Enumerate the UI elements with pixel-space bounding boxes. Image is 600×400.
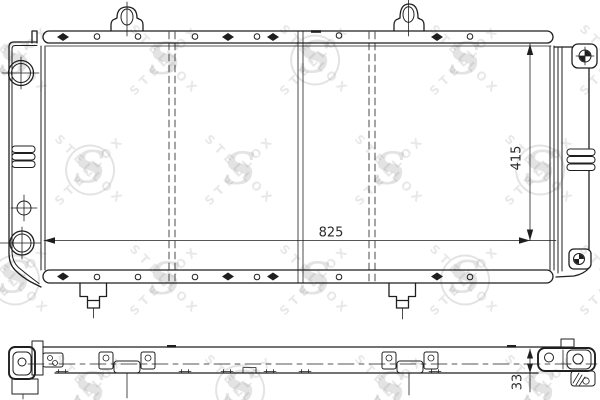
rivet-hole — [254, 34, 260, 40]
mount-tab — [141, 352, 155, 369]
top-rail-rivet-diamonds — [57, 33, 443, 41]
tab-hole — [428, 355, 434, 361]
tab-hole — [103, 355, 109, 361]
edge-notch — [243, 368, 256, 374]
strip-bracket-left — [9, 341, 63, 399]
rivet-hole — [135, 34, 141, 40]
arrowhead-down — [527, 230, 533, 241]
plug-body — [389, 283, 416, 308]
mount-tab — [382, 352, 396, 369]
strip-weld-mark — [167, 345, 176, 348]
arrowhead-right — [519, 237, 530, 243]
top-rail-weld-mark — [311, 30, 321, 33]
foot-outline — [571, 371, 595, 386]
drain-plug-right — [389, 283, 416, 319]
filler-neck — [2, 57, 39, 89]
foot-hole — [583, 378, 589, 384]
hose-rib — [12, 161, 35, 168]
rivet-hole — [336, 33, 342, 39]
screw-tab-top — [572, 44, 597, 68]
rivet-hole — [467, 274, 473, 280]
rivet-hole — [135, 274, 141, 280]
left-tank — [0, 31, 45, 287]
hose-rib — [567, 149, 595, 156]
strip-mount-left — [99, 352, 155, 398]
bracket-inner — [567, 350, 591, 369]
dimension-thickness-33: 33 — [511, 349, 534, 392]
rivet-hole — [192, 274, 198, 280]
tank-top-tab — [32, 31, 37, 43]
tab-hole — [145, 355, 151, 361]
bottom-view: 33 — [9, 339, 597, 399]
rivet-hole — [94, 34, 100, 40]
strip-bracket-right — [538, 348, 595, 386]
screw-slots — [574, 254, 584, 264]
drain-plug-left — [80, 283, 107, 318]
rivet-hole — [192, 34, 198, 40]
mount-block — [397, 361, 423, 373]
bracket-tab — [32, 341, 43, 375]
dimension-width-825: 825 — [44, 226, 556, 244]
plug-body — [80, 283, 107, 308]
rivet-hole — [467, 34, 473, 40]
hose-rib — [567, 164, 595, 171]
hose-rib — [12, 154, 35, 161]
mount-block — [114, 361, 140, 373]
bottom-rail-rivet-holes — [94, 274, 473, 280]
core-break-lines — [169, 31, 375, 283]
arrowhead-left — [44, 237, 55, 243]
right-tank — [550, 44, 597, 277]
bracket-hole — [545, 353, 554, 362]
front-view: 825 415 — [0, 0, 597, 319]
lower-opening — [0, 227, 41, 259]
bottom-rail-rivet-diamonds — [57, 273, 443, 281]
dimension-label-thickness: 33 — [511, 374, 526, 391]
rivet-hole — [336, 274, 342, 280]
rivet-hole — [94, 274, 100, 280]
dimension-label-height: 415 — [510, 146, 525, 171]
strip-weld-mark — [507, 345, 516, 348]
clip-hole — [53, 361, 58, 366]
radiator-technical-drawing: STELLOXSTELLOXSSTELLOXSTELLOXSSTELLOXSTE… — [0, 0, 600, 400]
vent-hole — [11, 195, 37, 221]
bracket-foot-hatched — [571, 371, 595, 386]
bracket-hole — [18, 358, 26, 366]
dimension-label-width: 825 — [319, 226, 344, 241]
mount-tab — [99, 352, 113, 369]
hose-rib — [567, 157, 595, 164]
hose-stub-left — [12, 146, 35, 168]
rivet-hole — [254, 274, 260, 280]
bracket-hole — [573, 354, 583, 364]
hose-rib — [12, 146, 35, 153]
mount-tab — [424, 352, 438, 369]
tab-hole — [386, 355, 392, 361]
screw-tab-bottom — [569, 249, 591, 269]
hose-stub-right — [567, 149, 595, 171]
arrowhead-up — [527, 349, 533, 359]
bracket-inner — [13, 352, 31, 375]
dimension-height-415: 415 — [510, 44, 534, 241]
top-rail-rivet-holes — [94, 33, 473, 40]
strip-end-tab — [561, 339, 574, 347]
clip-hole — [48, 356, 53, 361]
bracket-foot — [12, 379, 38, 394]
screw-slots — [580, 51, 591, 62]
radiator-drawing-svg: 825 415 — [0, 0, 600, 400]
arrowhead-down — [527, 364, 533, 374]
bracket-dome — [394, 4, 424, 31]
